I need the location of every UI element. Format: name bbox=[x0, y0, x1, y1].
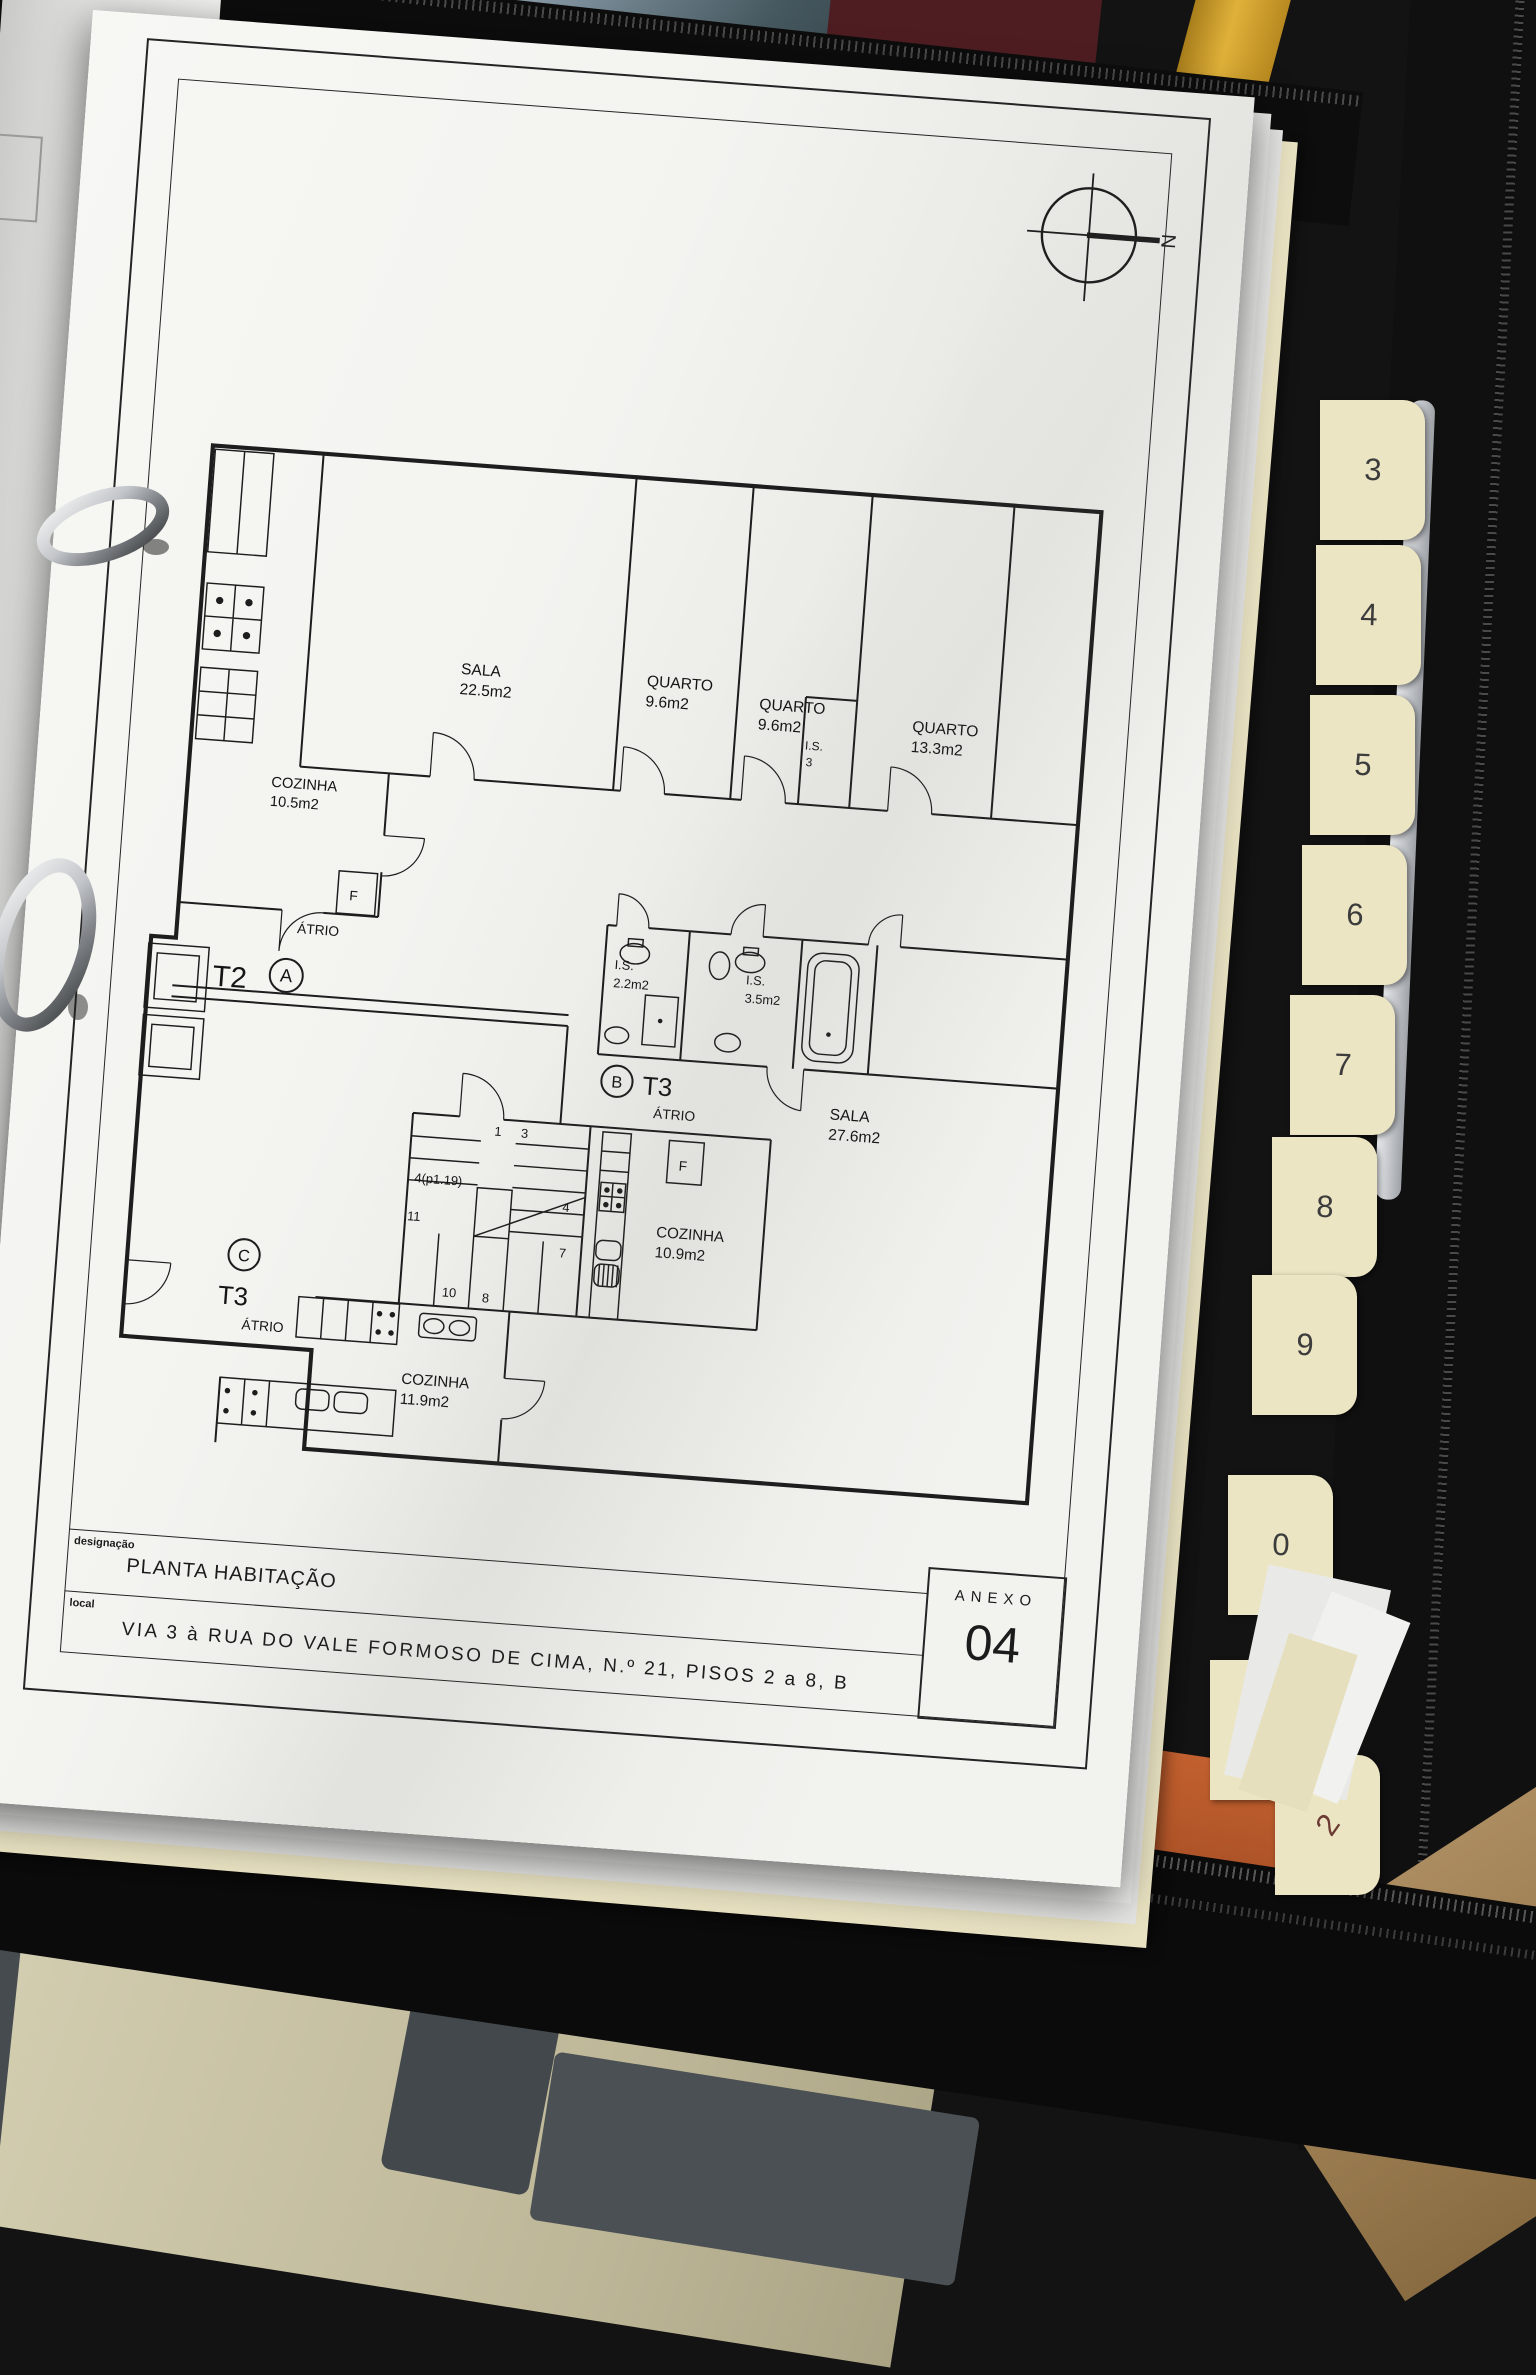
annex-number: 04 bbox=[923, 1610, 1062, 1678]
tab-number: 4 bbox=[1359, 597, 1377, 634]
designation-label: designação bbox=[74, 1535, 135, 1552]
tab-number: 0 bbox=[1271, 1527, 1289, 1564]
title-block: designação PLANTA HABITAÇÃO local VIA 3 … bbox=[0, 10, 1255, 1887]
binder-ring bbox=[0, 845, 128, 1045]
location-value: VIA 3 à RUA DO VALE FORMOSO DE CIMA, N.º… bbox=[121, 1619, 850, 1696]
tab-number: 2 bbox=[1308, 1808, 1347, 1843]
tab-number: 8 bbox=[1315, 1189, 1333, 1226]
binder-tab: 7 bbox=[1290, 995, 1395, 1135]
binder-tab: 8 bbox=[1272, 1137, 1377, 1277]
binder-tab: 4 bbox=[1316, 545, 1421, 685]
drawing-sheet: N bbox=[0, 10, 1255, 1887]
designation-value: PLANTA HABITAÇÃO bbox=[126, 1555, 338, 1594]
annex-box: ANEXO 04 bbox=[917, 1567, 1067, 1729]
tab-number: 6 bbox=[1345, 897, 1363, 934]
tab-number: 3 bbox=[1363, 452, 1381, 489]
annex-label: ANEXO bbox=[928, 1585, 1064, 1612]
tab-number: 5 bbox=[1353, 747, 1371, 784]
binder-ring bbox=[18, 468, 188, 588]
binder-tab: 6 bbox=[1302, 845, 1407, 985]
left-page-sketch-rect bbox=[0, 134, 43, 223]
tab-number: 7 bbox=[1333, 1047, 1351, 1084]
binder-tab: 5 bbox=[1310, 695, 1415, 835]
planner-numeral bbox=[529, 2051, 980, 2286]
binder-tab: 3 bbox=[1320, 400, 1425, 540]
binder-tab: 9 bbox=[1252, 1275, 1357, 1415]
location-label: local bbox=[69, 1597, 95, 1611]
tab-number: 9 bbox=[1295, 1327, 1313, 1364]
